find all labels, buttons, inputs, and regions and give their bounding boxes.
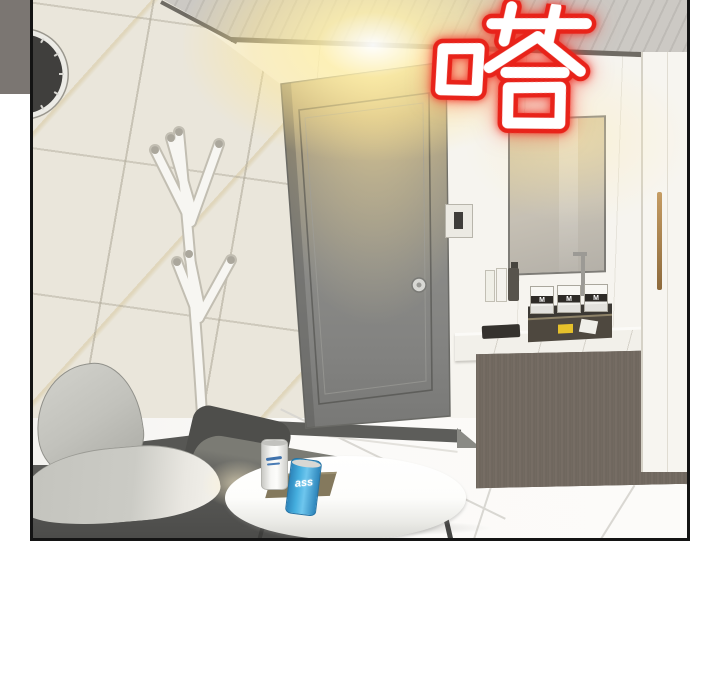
cup-label: M bbox=[558, 295, 580, 303]
wall-clock bbox=[30, 26, 85, 126]
floor-grout-line bbox=[597, 485, 636, 541]
comic-panel: M M M bbox=[30, 0, 690, 541]
phone bbox=[482, 324, 521, 339]
outside-gutter bbox=[0, 0, 30, 94]
can-lid bbox=[292, 458, 322, 468]
tall-cabinet bbox=[641, 52, 689, 472]
can-lid bbox=[262, 440, 287, 446]
toothbrush-cup: M bbox=[530, 286, 554, 314]
light-switch-button bbox=[454, 212, 463, 229]
yellow-soap bbox=[558, 324, 573, 334]
can-label-script bbox=[266, 456, 282, 461]
toothbrush-cup: M bbox=[557, 285, 581, 313]
soap-bottle bbox=[485, 270, 495, 302]
cup-label: M bbox=[585, 294, 607, 302]
cup-label: M bbox=[531, 296, 553, 304]
soap-bottle bbox=[496, 268, 507, 302]
cabinet-seam bbox=[667, 52, 668, 472]
brass-handle bbox=[657, 192, 662, 290]
sfx-sound-effect bbox=[424, 0, 598, 150]
can-label-script bbox=[267, 462, 280, 465]
light-switch bbox=[445, 204, 473, 238]
blue-can-logo: ass bbox=[289, 476, 319, 490]
white-card bbox=[579, 319, 598, 335]
pump-bottle bbox=[508, 268, 519, 301]
white-beer-can bbox=[261, 439, 288, 490]
toothbrush-cup: M bbox=[584, 284, 608, 312]
panel-content: M M M bbox=[33, 0, 687, 538]
webtoon-panel-image: M M M bbox=[0, 0, 720, 700]
vanity-tray bbox=[528, 314, 612, 342]
